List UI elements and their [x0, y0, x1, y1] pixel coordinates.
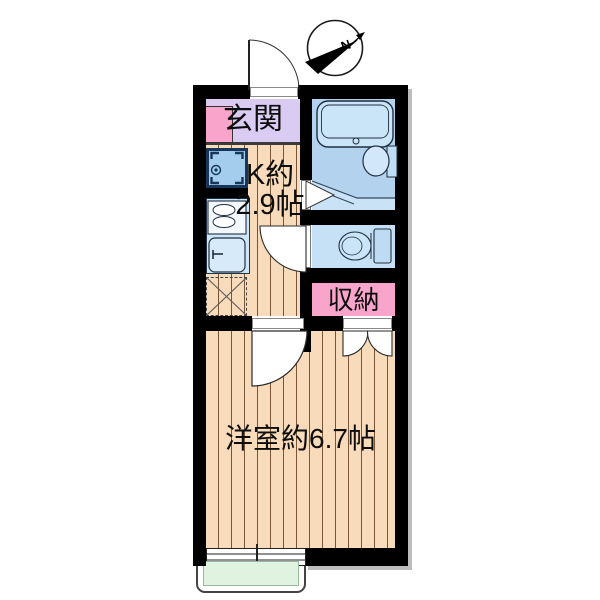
kitchen-label-line2: 2.9帖: [218, 190, 322, 220]
floor-plan: N 玄関 K約 2.9帖 収納 洋室約6.7帖: [0, 0, 600, 600]
toilet-bowl: [339, 232, 371, 260]
storage-label: 収納: [312, 287, 395, 314]
entrance-door-arc: [249, 40, 299, 90]
kitchen-label-line1: K約: [218, 160, 322, 190]
fixtures-layer: N: [0, 0, 600, 600]
toilet-tank: [374, 229, 391, 263]
entrance-label: 玄関: [206, 104, 300, 136]
western-room-label: 洋室約6.7帖: [206, 424, 395, 453]
kitchen-label: K約 2.9帖: [218, 160, 322, 221]
kitchen-sink: [209, 238, 245, 272]
closet-door-left: [343, 331, 368, 356]
room-swing-door: [252, 331, 307, 386]
toilet-door: [260, 226, 306, 272]
bathtub-drain: [353, 138, 359, 144]
closet-door-right: [367, 331, 392, 356]
bathroom-sink: [363, 146, 389, 176]
